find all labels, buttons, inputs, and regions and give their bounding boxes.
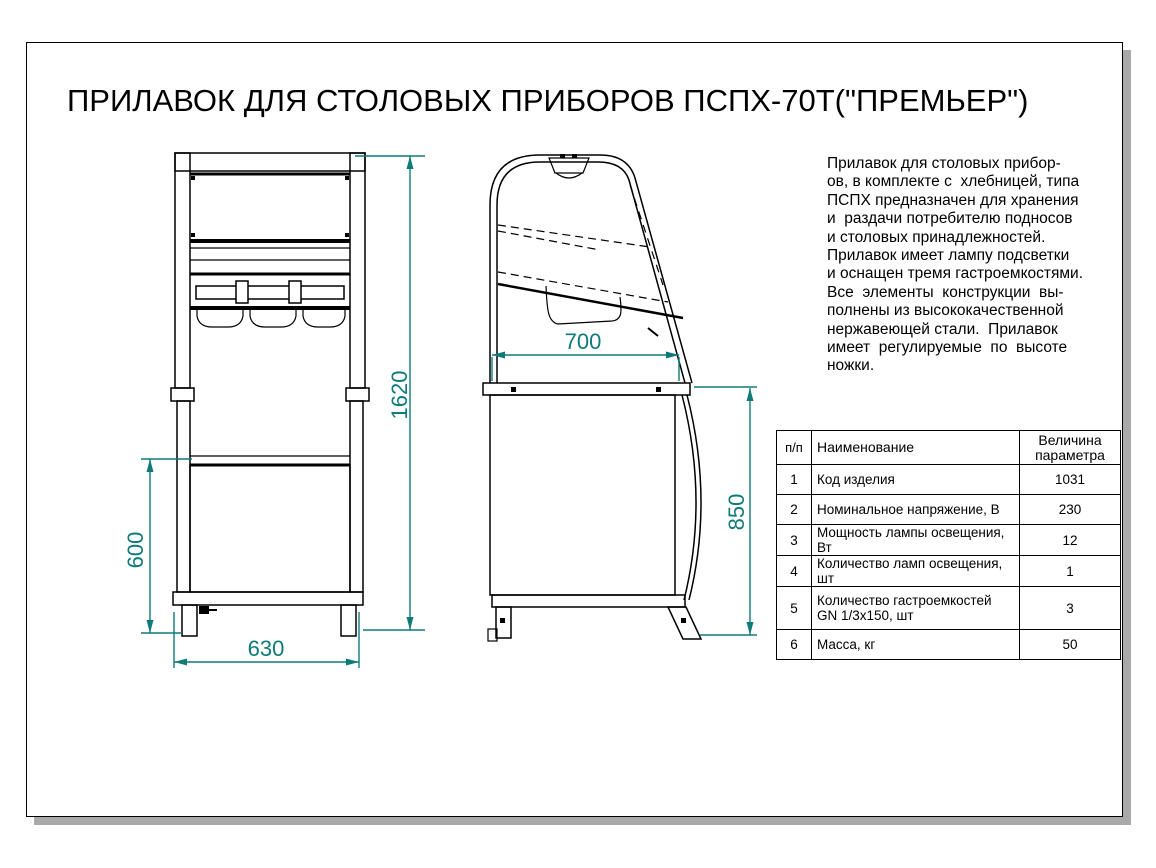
row-value: 1 bbox=[1020, 556, 1121, 587]
row-num: 6 bbox=[777, 630, 812, 660]
table-row: 3 Мощность лампы освещения, Вт 12 bbox=[777, 525, 1121, 556]
description-line: и столовых принадлежностей. bbox=[827, 229, 1117, 247]
row-name: Количество гастроемкостей GN 1/3x150, шт bbox=[812, 587, 1020, 630]
description-line: Прилавок для столовых прибор- bbox=[827, 155, 1117, 173]
description-line: ножки. bbox=[827, 357, 1117, 375]
row-value: 1031 bbox=[1020, 465, 1121, 495]
dimension-label-base-height: 600 bbox=[125, 522, 147, 578]
row-name: Количество ламп освещения, шт bbox=[812, 556, 1020, 587]
row-num: 1 bbox=[777, 465, 812, 495]
dimension-label-counter-depth: 700 bbox=[553, 331, 613, 353]
product-description: Прилавок для столовых прибор- ов, в комп… bbox=[827, 155, 1117, 376]
specification-table: п/п Наименование Величина параметра 1 Ко… bbox=[776, 430, 1121, 660]
front-view-drawing bbox=[171, 153, 369, 636]
row-name: Код изделия bbox=[812, 465, 1020, 495]
dimension-lines bbox=[141, 156, 757, 668]
side-view-drawing bbox=[483, 154, 701, 641]
table-row: 2 Номинальное напряжение, В 230 bbox=[777, 495, 1121, 525]
table-header-row: п/п Наименование Величина параметра bbox=[777, 431, 1121, 465]
description-line: и оснащен тремя гастроемкостями. bbox=[827, 265, 1117, 283]
dimension-label-base-width: 630 bbox=[236, 638, 296, 660]
description-line: имеет регулируемые по высоте bbox=[827, 339, 1117, 357]
row-name-line2: GN 1/3x150, шт bbox=[817, 608, 1014, 623]
header-name: Наименование bbox=[812, 431, 1020, 465]
row-num: 4 bbox=[777, 556, 812, 587]
description-line: полнены из высококачественной bbox=[827, 302, 1117, 320]
row-num: 3 bbox=[777, 525, 812, 556]
page-title: ПРИЛАВОК ДЛЯ СТОЛОВЫХ ПРИБОРОВ ПСПХ-70Т(… bbox=[67, 83, 1067, 119]
description-line: нержавеющей стали. Прилавок bbox=[827, 321, 1117, 339]
row-num: 2 bbox=[777, 495, 812, 525]
dimension-label-overall-height: 1620 bbox=[389, 362, 411, 428]
table-row: 6 Масса, кг 50 bbox=[777, 630, 1121, 660]
header-num: п/п bbox=[777, 431, 812, 465]
row-value: 3 bbox=[1020, 587, 1121, 630]
drawing-sheet-page: ПРИЛАВОК ДЛЯ СТОЛОВЫХ ПРИБОРОВ ПСПХ-70Т(… bbox=[0, 0, 1156, 868]
row-num: 5 bbox=[777, 587, 812, 630]
description-line: ПСПХ предназначен для хранения bbox=[827, 192, 1117, 210]
description-line: Прилавок имеет лампу подсветки bbox=[827, 247, 1117, 265]
description-line: ов, в комплекте с хлебницей, типа bbox=[827, 173, 1117, 191]
header-value-line2: параметра bbox=[1025, 448, 1115, 463]
row-name: Масса, кг bbox=[812, 630, 1020, 660]
row-value: 230 bbox=[1020, 495, 1121, 525]
row-name-line1: Количество гастроемкостей bbox=[817, 593, 1014, 608]
description-line: и раздачи потребителю подносов bbox=[827, 210, 1117, 228]
dimension-label-counter-height: 850 bbox=[726, 484, 748, 540]
row-value: 12 bbox=[1020, 525, 1121, 556]
header-value: Величина параметра bbox=[1020, 431, 1121, 465]
table-row: 4 Количество ламп освещения, шт 1 bbox=[777, 556, 1121, 587]
row-name: Номинальное напряжение, В bbox=[812, 495, 1020, 525]
row-value: 50 bbox=[1020, 630, 1121, 660]
description-line: Все элементы конструкции вы- bbox=[827, 284, 1117, 302]
table-row: 1 Код изделия 1031 bbox=[777, 465, 1121, 495]
table-row: 5 Количество гастроемкостей GN 1/3x150, … bbox=[777, 587, 1121, 630]
header-value-line1: Величина bbox=[1025, 433, 1115, 448]
row-name: Мощность лампы освещения, Вт bbox=[812, 525, 1020, 556]
